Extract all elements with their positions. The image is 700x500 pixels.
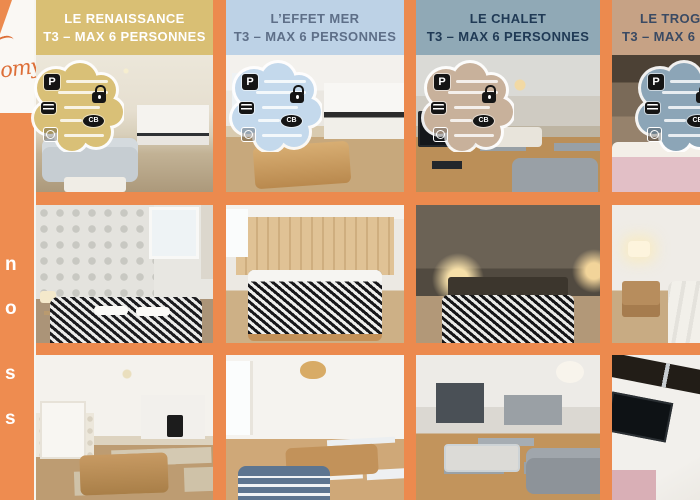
lock-icon <box>92 92 106 103</box>
brand-logo-box: omy <box>0 0 34 113</box>
keypad-icon <box>645 102 660 114</box>
property-capacity: T3 – MAX 6 PERSONNES <box>43 29 206 44</box>
photo-effetmer-living-dining <box>226 355 404 500</box>
window-shape <box>226 209 248 257</box>
photo-renaissance-dining-room <box>36 355 213 500</box>
bank-card-cb-icon: CB <box>281 115 302 127</box>
badge-text-line <box>66 80 108 83</box>
wicker-pendant-shape <box>300 361 326 379</box>
washing-machine-icon <box>433 127 448 142</box>
header-l-effet-mer: L’EFFET MER T3 – MAX 6 PERSONNES <box>226 0 404 55</box>
keypad-icon <box>41 102 56 114</box>
lock-icon <box>696 92 700 103</box>
bank-card-cb-icon: CB <box>473 115 494 127</box>
badge-text-line <box>668 106 700 109</box>
towels-shape <box>94 306 128 315</box>
property-name: LE TROG <box>640 11 700 26</box>
badge-text-line <box>664 119 686 122</box>
washing-machine-icon <box>647 127 662 142</box>
badge-text-line <box>454 106 490 109</box>
striped-sofa-shape <box>238 466 330 500</box>
badge-text-line <box>454 134 494 137</box>
keypad-icon <box>239 102 254 114</box>
amenities-cloud-badge: P CB <box>634 60 700 152</box>
wallpaper-shape <box>36 205 154 299</box>
window-shape <box>149 207 199 259</box>
glass-table-shape <box>444 444 520 472</box>
window-shape <box>226 361 253 435</box>
lock-icon <box>290 92 304 103</box>
accent-wall-shape <box>436 383 484 423</box>
logo-swash-shape <box>0 34 15 50</box>
property-name: L’EFFET MER <box>271 11 360 26</box>
sofa-shape <box>526 448 600 494</box>
parking-icon: P <box>44 74 60 90</box>
curtain-shape <box>201 205 213 279</box>
column-l-effet-mer: L’EFFET MER T3 – MAX 6 PERSONNES <box>226 0 404 500</box>
parking-icon: P <box>242 74 258 90</box>
fireplace-shape <box>40 401 86 459</box>
photo-trog-bedroom <box>612 205 700 343</box>
amenities-cloud-badge: P CB <box>420 60 514 152</box>
column-le-trog: LE TROG T3 – MAX 6 <box>612 0 700 500</box>
sofa-shape <box>512 158 598 192</box>
sidebar-item-fragment: n <box>5 254 17 276</box>
badge-text-line <box>258 119 280 122</box>
bed-shape <box>50 297 202 343</box>
amenities-cloud-badge: P CB <box>30 60 124 152</box>
dining-table-shape <box>79 452 168 495</box>
header-le-renaissance: LE RENAISSANCE T3 – MAX 6 PERSONNES <box>36 0 213 55</box>
pink-bedding-shape <box>612 470 656 500</box>
kitchen-shape <box>504 395 562 425</box>
badge-text-line <box>60 119 82 122</box>
badge-text-line <box>264 80 306 83</box>
kitchen-shape <box>137 105 209 145</box>
bank-card-cb-icon: CB <box>83 115 104 127</box>
badge-text-line <box>262 134 302 137</box>
bed-shape <box>248 270 382 341</box>
sidebar-item-fragment: s <box>5 408 16 430</box>
tv-shape <box>612 391 673 442</box>
header-le-trog: LE TROG T3 – MAX 6 <box>612 0 700 55</box>
rental-collage: n o s s omy LE RENAISSANCE T3 – MAX 6 PE… <box>0 0 700 500</box>
photo-chalet-living-dining <box>416 355 600 500</box>
badge-text-line <box>670 80 700 83</box>
property-capacity: T3 – MAX 6 <box>622 29 695 44</box>
kitchen-cabinets-shape <box>324 83 404 139</box>
lock-icon <box>482 92 496 103</box>
nightstand-shape <box>622 281 660 317</box>
badge-text-line <box>64 134 104 137</box>
sidebar-item-fragment: o <box>5 298 17 320</box>
oven-shape <box>167 415 183 437</box>
keypad-icon <box>431 102 446 114</box>
wood-slat-wall-shape <box>236 217 394 275</box>
photo-trog-attic-room <box>612 355 700 500</box>
sidebar-item-fragment: s <box>5 363 16 385</box>
coffee-table-shape <box>64 177 126 192</box>
parking-icon: P <box>434 74 450 90</box>
bed-shape <box>442 295 574 343</box>
badge-text-line <box>662 91 700 94</box>
header-le-chalet: LE CHALET T3 – MAX 6 PERSONNES <box>416 0 600 55</box>
column-le-chalet: LE CHALET T3 – MAX 6 PERSONNES <box>416 0 600 500</box>
photo-effetmer-bedroom <box>226 205 404 343</box>
bed-shape <box>668 281 700 343</box>
property-name: LE RENAISSANCE <box>64 11 184 26</box>
property-capacity: T3 – MAX 6 PERSONNES <box>234 29 397 44</box>
lamp-shape <box>628 241 650 257</box>
washing-machine-icon <box>241 127 256 142</box>
pendant-lamp-shape <box>556 361 584 383</box>
badge-text-line <box>456 80 498 83</box>
badge-text-line <box>450 119 472 122</box>
washing-machine-icon <box>43 127 58 142</box>
badge-text-line <box>668 134 700 137</box>
amenities-cloud-badge: P CB <box>228 60 322 152</box>
badge-text-line <box>64 106 100 109</box>
property-capacity: T3 – MAX 6 PERSONNES <box>427 29 590 44</box>
column-le-renaissance: LE RENAISSANCE T3 – MAX 6 PERSONNES <box>36 0 213 500</box>
photo-chalet-bedroom <box>416 205 600 343</box>
parking-icon: P <box>648 74 664 90</box>
logo-corner-shape <box>0 0 12 34</box>
property-name: LE CHALET <box>470 11 547 26</box>
photo-renaissance-bedroom <box>36 205 213 343</box>
badge-text-line <box>262 106 298 109</box>
